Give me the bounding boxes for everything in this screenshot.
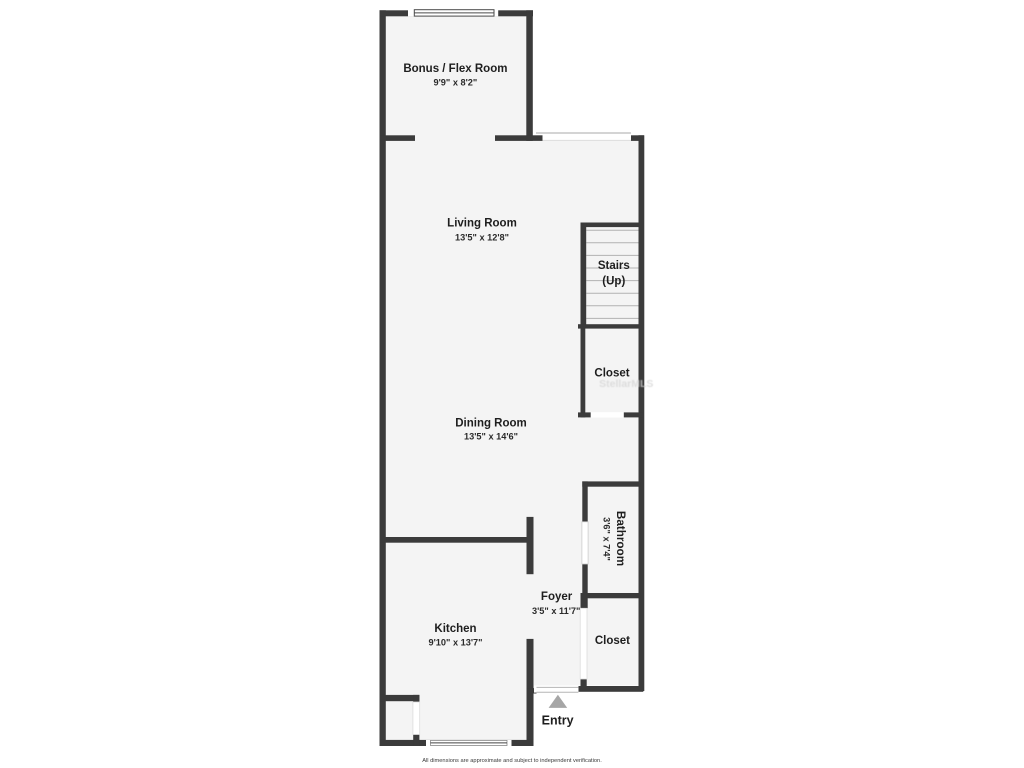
svg-text:3'5" x 11'7": 3'5" x 11'7" bbox=[532, 606, 580, 616]
svg-text:Closet: Closet bbox=[594, 368, 629, 380]
svg-text:Kitchen: Kitchen bbox=[434, 623, 476, 635]
svg-text:Closet: Closet bbox=[595, 635, 630, 647]
svg-text:Dining Room: Dining Room bbox=[455, 417, 527, 429]
svg-text:13'5" x 14'6": 13'5" x 14'6" bbox=[464, 432, 518, 442]
svg-text:Bonus / Flex Room: Bonus / Flex Room bbox=[403, 63, 507, 75]
svg-text:Entry: Entry bbox=[542, 714, 574, 728]
svg-text:9'10" x 13'7": 9'10" x 13'7" bbox=[429, 638, 483, 648]
svg-text:Stairs: Stairs bbox=[598, 260, 630, 272]
svg-text:13'5" x 12'8": 13'5" x 12'8" bbox=[455, 232, 509, 242]
svg-text:Living Room: Living Room bbox=[447, 217, 517, 229]
svg-text:9'9" x 8'2": 9'9" x 8'2" bbox=[434, 78, 478, 88]
svg-text:All dimensions are approximate: All dimensions are approximate and subje… bbox=[422, 758, 602, 764]
svg-text:StellarMLS: StellarMLS bbox=[599, 378, 653, 390]
svg-text:Bathroom: Bathroom bbox=[614, 511, 627, 566]
svg-text:Foyer: Foyer bbox=[541, 591, 573, 603]
svg-text:(Up): (Up) bbox=[602, 275, 625, 287]
svg-text:3'6" x 7'4": 3'6" x 7'4" bbox=[602, 517, 612, 561]
